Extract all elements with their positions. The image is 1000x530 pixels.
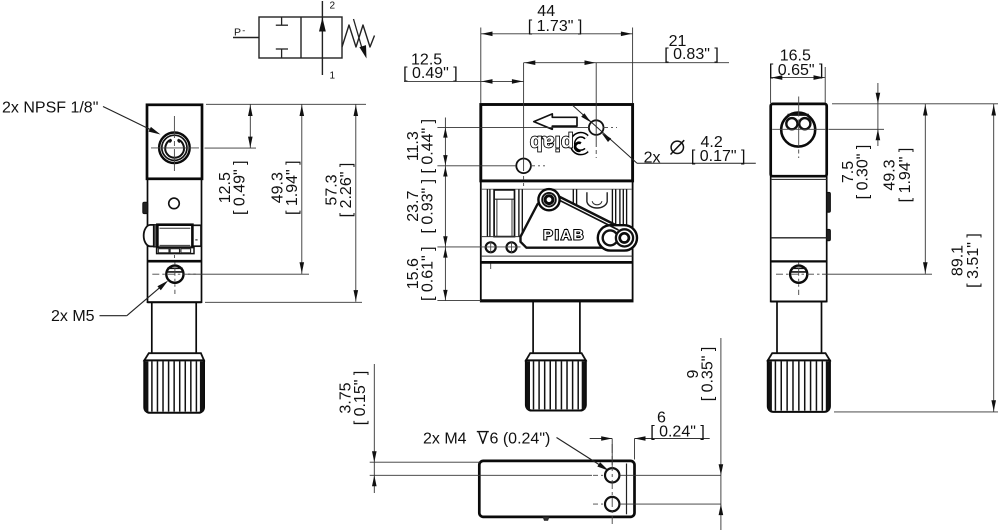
svg-text:6 (0.24"): 6 (0.24")	[490, 430, 551, 447]
svg-text:[ 0.24" ]: [ 0.24" ]	[650, 424, 705, 441]
svg-text:[ 1.73" ]: [ 1.73" ]	[528, 18, 583, 35]
svg-text:2x M4: 2x M4	[423, 430, 467, 447]
svg-text:[ 0.30" ]: [ 0.30" ]	[854, 145, 871, 200]
svg-text:49.3: 49.3	[881, 159, 898, 190]
svg-text:PIAB: PIAB	[543, 226, 585, 242]
svg-text:[ 0.65" ]: [ 0.65" ]	[769, 62, 824, 79]
svg-text:2x: 2x	[644, 150, 661, 167]
svg-text:[ 3.51" ]: [ 3.51" ]	[965, 233, 982, 288]
svg-text:1: 1	[330, 71, 336, 82]
svg-text:89.1: 89.1	[949, 245, 966, 276]
svg-text:[ 0.49" ]: [ 0.49" ]	[403, 65, 458, 82]
svg-text:[ 0.93" ]: [ 0.93" ]	[420, 179, 437, 234]
svg-text:piab: piab	[529, 131, 573, 154]
svg-text:[ 0.49" ]: [ 0.49" ]	[232, 160, 249, 215]
svg-text:-: -	[242, 26, 245, 36]
svg-text:[ 0.15" ]: [ 0.15" ]	[352, 371, 369, 426]
svg-text:2x NPSF 1/8": 2x NPSF 1/8"	[2, 99, 98, 116]
svg-text:[ 0.83" ]: [ 0.83" ]	[664, 46, 719, 63]
svg-text:[ 0.17" ]: [ 0.17" ]	[691, 148, 746, 165]
svg-text:P: P	[234, 27, 241, 39]
svg-text:2: 2	[330, 1, 336, 12]
svg-text:[ 2.26" ]: [ 2.26" ]	[338, 163, 355, 218]
svg-text:[ 0.61" ]: [ 0.61" ]	[420, 246, 437, 301]
svg-text:[ 0.35" ]: [ 0.35" ]	[699, 347, 716, 402]
svg-text:[ 1.94" ]: [ 1.94" ]	[284, 160, 301, 215]
svg-text:[ 0.44" ]: [ 0.44" ]	[420, 119, 437, 174]
svg-text:2x M5: 2x M5	[51, 308, 95, 325]
svg-text:[ 1.94" ]: [ 1.94" ]	[897, 148, 914, 203]
